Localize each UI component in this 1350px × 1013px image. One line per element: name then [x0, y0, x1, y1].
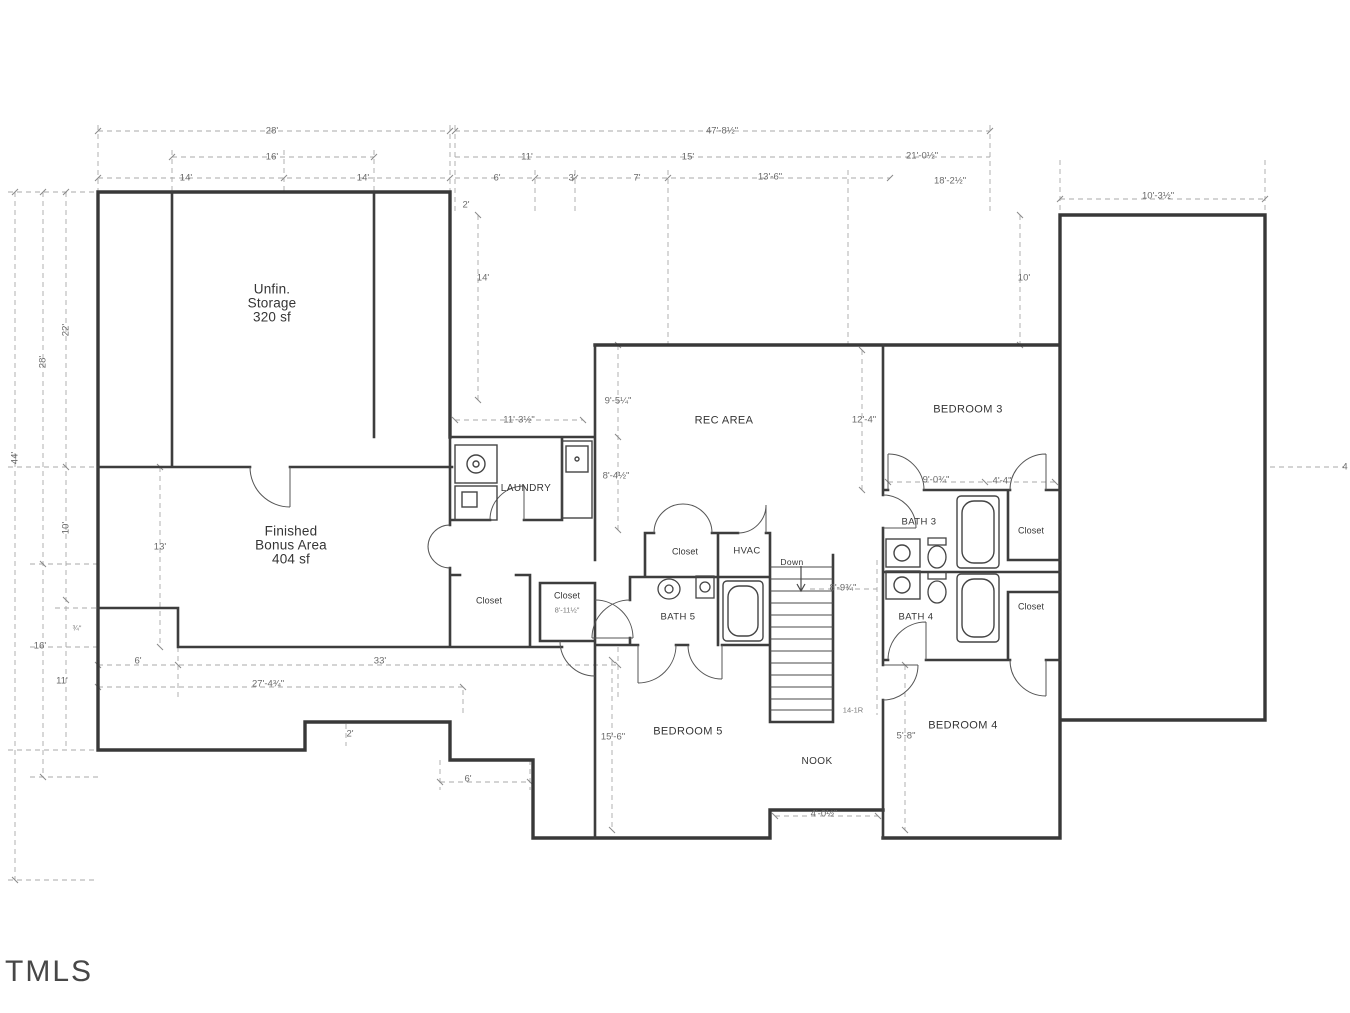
dim-top-10ft3: 10'-3½": [1142, 191, 1174, 201]
room-label-unfinished-storage-area: 320 sf: [253, 310, 291, 324]
dim-bottom-2ft-step: 2': [346, 729, 353, 739]
room-label-closet-small: Closet: [554, 592, 580, 601]
room-label-closet-bedroom3: Closet: [1018, 527, 1044, 536]
dim-nook-4ft0: 4'-0½": [811, 809, 838, 819]
room-label-closet-bedroom4: Closet: [1018, 603, 1044, 612]
room-label-bonus-line1: Finished: [265, 524, 318, 538]
room-label-nook: NOOK: [801, 757, 832, 767]
floor-plan-drawing: [0, 0, 1350, 1013]
room-label-closet-hall: Closet: [476, 597, 502, 606]
dim-bedroom5-15ft6: 15'-6": [601, 732, 625, 742]
dim-bedroom3-9ft0: 9'-0¾": [923, 475, 950, 485]
floor-plan-second-floor: Unfin. Storage 320 sf Finished Bonus Are…: [0, 0, 1350, 1013]
tmls-watermark: TMLS: [5, 955, 93, 989]
dim-rec-9ft5: 9'-5¼": [605, 396, 632, 406]
room-label-bedroom4: BEDROOM 4: [928, 721, 998, 732]
room-label-unfinished-storage-line2: Storage: [248, 296, 297, 310]
dim-rec-12ft4: 12'-4": [852, 415, 876, 425]
dim-attic-14ft: 14': [477, 273, 489, 283]
dim-right-10ft: 10': [1018, 273, 1030, 283]
dim-top-28ft: 28': [266, 126, 278, 136]
laundry-washer-icon: [455, 445, 497, 483]
dimension-lines: [8, 125, 1344, 880]
stairs-down-label: Down: [780, 558, 803, 567]
dim-top-11ft: 11': [521, 152, 533, 162]
dim-left-11ft: 11': [56, 676, 68, 686]
dim-laundry-11ft3: 11'-3½": [503, 415, 534, 425]
bath4-toilet-icon: [928, 572, 946, 603]
bath5-toilet-icon: [658, 579, 680, 599]
dim-bottom-6ft: 6': [134, 656, 141, 666]
dim-left-28ft: 28': [38, 356, 48, 368]
bath3-toilet-icon: [928, 538, 946, 568]
dim-top-18ft2: 18'-2½": [934, 176, 966, 186]
room-label-laundry: LAUNDRY: [501, 484, 551, 494]
bath5-sink-icon: [696, 576, 714, 598]
dim-closet-8ft11: 8'-11½": [555, 606, 580, 614]
room-label-bedroom5: BEDROOM 5: [653, 727, 723, 738]
bath4-sink-icon: [886, 571, 920, 599]
room-label-hvac: HVAC: [733, 546, 760, 556]
dim-top-21ft: 21'-0½": [906, 151, 938, 161]
dim-top-13ft6: 13'-6": [758, 172, 782, 182]
bath5-tub-icon: [723, 581, 763, 641]
bath3-tub-icon: [957, 496, 999, 568]
room-label-bonus-line2: Bonus Area: [255, 538, 327, 552]
room-label-bath5: BATH 5: [661, 612, 696, 622]
walls-interior: [98, 192, 1060, 838]
dim-top-14ft-b: 14': [357, 173, 369, 183]
dim-rec-8ft4: 8'-4½": [603, 471, 630, 481]
laundry-cabinet-icon: [562, 441, 592, 518]
bath4-tub-icon: [957, 574, 999, 642]
room-label-bath4: BATH 4: [899, 612, 934, 622]
dim-right-edge-cut: 4: [1342, 462, 1347, 472]
dim-top-2ft-step: 2': [462, 200, 469, 210]
dim-top-15ft: 15': [682, 152, 694, 162]
stairs-riser-note: 14-1R: [843, 706, 863, 714]
bath3-sink-icon: [886, 539, 920, 567]
dim-bottom-27ft4: 27'-4¾": [252, 679, 284, 689]
dim-top-14ft-a: 14': [180, 173, 192, 183]
room-label-bonus-area: 404 sf: [272, 552, 310, 566]
dim-hall-8ft9: 8'-9¾": [830, 583, 857, 593]
dim-top-6ft: 6': [493, 173, 500, 183]
dim-top-7ft: 7': [633, 173, 640, 183]
dimension-ticks: [12, 128, 1268, 883]
dim-bedroom3-4ft4: 4'-4": [993, 476, 1012, 486]
room-label-bath3: BATH 3: [902, 517, 937, 527]
dim-left-10ft: 10': [61, 522, 71, 534]
dim-bottom-6ft-b: 6': [464, 774, 471, 784]
dim-bottom-33ft: 33': [374, 656, 386, 666]
room-label-closet-rec: Closet: [672, 548, 698, 557]
room-label-bedroom3: BEDROOM 3: [933, 405, 1003, 416]
dim-top-16ft: 16': [266, 152, 278, 162]
dim-left-three-quarter: ¾": [73, 624, 82, 632]
room-label-rec-area: REC AREA: [695, 416, 754, 427]
dim-top-47ft: 47'-8½": [706, 126, 738, 136]
dim-bedroom4-5ft8: 5'-8": [897, 731, 916, 741]
dim-bonus-13ft: 13': [154, 542, 166, 552]
dim-top-3ft: 3': [568, 173, 575, 183]
room-label-unfinished-storage-line1: Unfin.: [254, 282, 290, 296]
dim-left-16ft: 16': [34, 641, 46, 651]
dim-left-44ft: 44': [10, 452, 20, 464]
dim-left-22ft: 22': [61, 324, 71, 336]
